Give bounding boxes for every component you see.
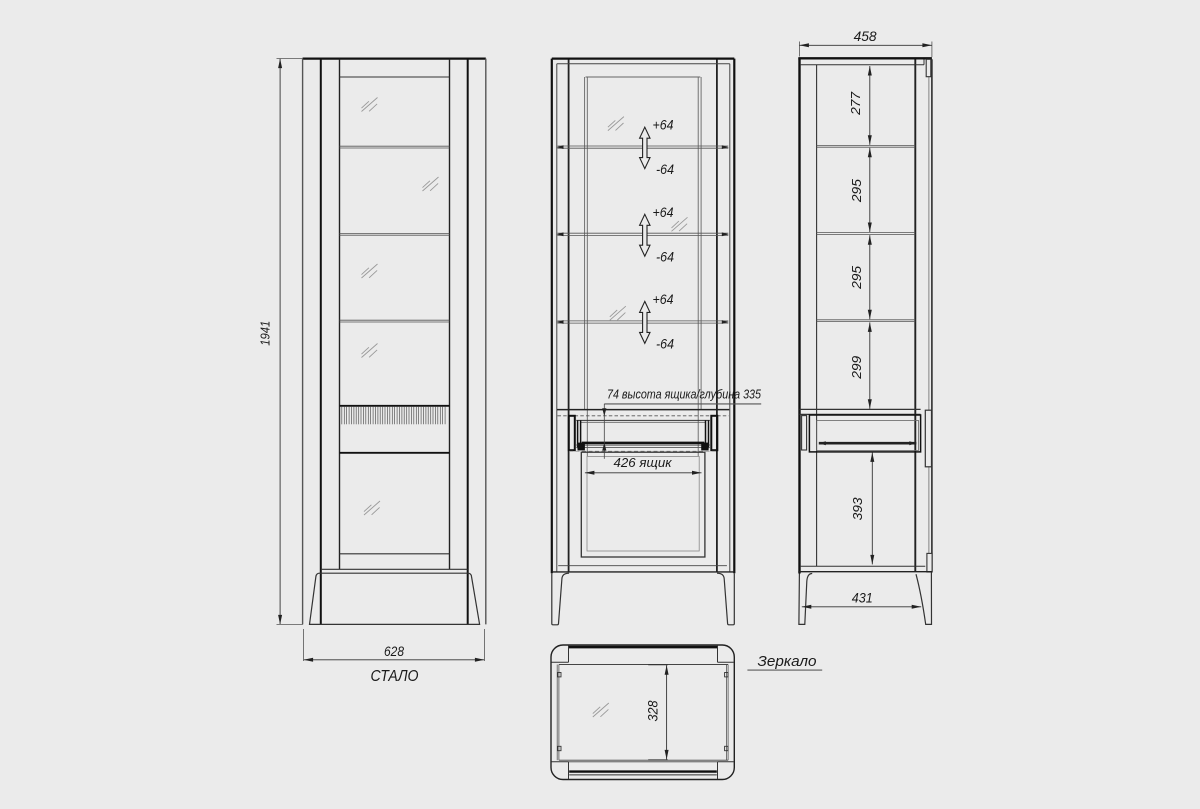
svg-text:299: 299 [849,355,864,380]
svg-text:431: 431 [852,591,873,606]
svg-text:1941: 1941 [258,321,273,346]
svg-text:Зеркало: Зеркало [758,653,817,670]
svg-text:+64: +64 [653,118,674,133]
svg-text:СТАЛО: СТАЛО [371,668,419,685]
svg-text:393: 393 [850,497,865,521]
svg-text:277: 277 [848,91,863,116]
svg-text:328: 328 [645,700,660,721]
svg-text:426 ящик: 426 ящик [614,455,673,470]
svg-text:+64: +64 [653,292,674,307]
svg-text:458: 458 [854,29,877,44]
svg-text:-64: -64 [656,249,674,264]
svg-text:295: 295 [849,178,864,203]
svg-text:+64: +64 [653,205,674,220]
svg-text:-64: -64 [656,337,674,352]
svg-text:74 высота ящика/глубина 335: 74 высота ящика/глубина 335 [607,388,761,402]
svg-text:295: 295 [849,265,864,290]
svg-text:-64: -64 [656,162,674,177]
svg-text:628: 628 [384,643,404,659]
